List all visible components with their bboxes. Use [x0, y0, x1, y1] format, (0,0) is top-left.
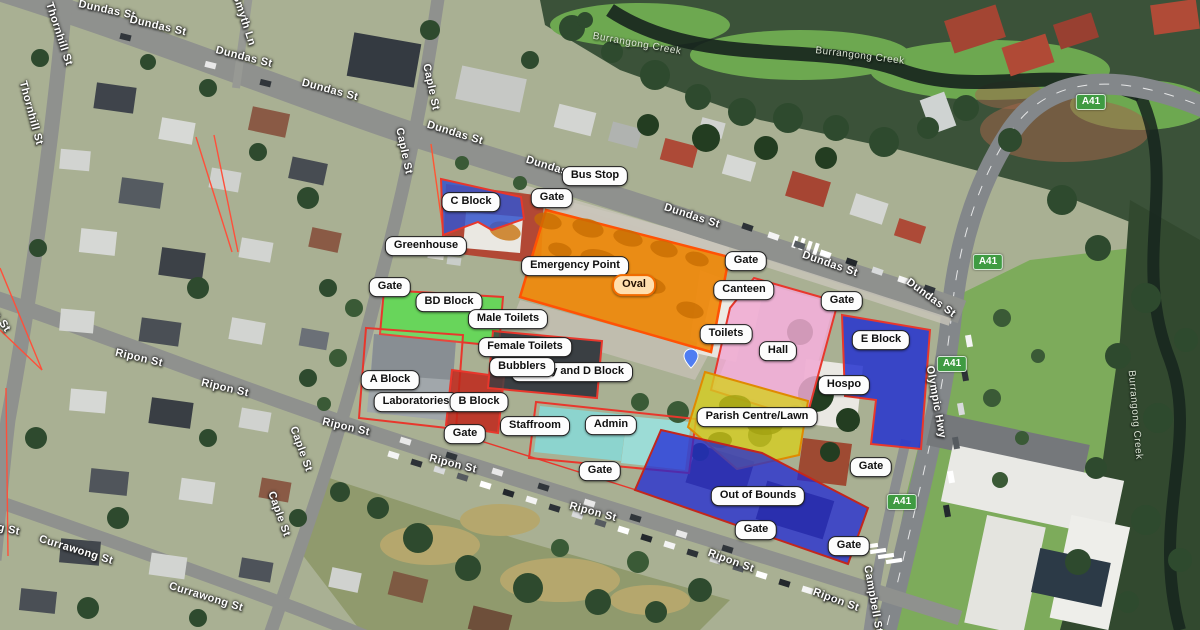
zone-label-laboratories: Laboratories	[374, 392, 459, 412]
gate-label-1: Gate	[531, 188, 573, 208]
zone-label-oval: Oval	[612, 274, 656, 296]
gate-label-4: Gate	[369, 277, 411, 297]
zone-label-bus-stop: Bus Stop	[562, 166, 628, 186]
zone-label-out-of-bounds: Out of Bounds	[711, 486, 805, 506]
gate-label-3: Gate	[821, 291, 863, 311]
zone-label-emergency-point: Emergency Point	[521, 256, 629, 276]
route-badge-a41-4: A41	[887, 494, 917, 510]
map-canvas[interactable]: Dundas St Dundas St Dundas St Dundas St …	[0, 0, 1200, 630]
zone-label-greenhouse: Greenhouse	[385, 236, 467, 256]
zone-label-male-toilets: Male Toilets	[468, 309, 548, 329]
gate-label-7: Gate	[850, 457, 892, 477]
zone-label-c-block: C Block	[442, 192, 501, 212]
gate-label-8: Gate	[735, 520, 777, 540]
route-badge-a41-2: A41	[973, 254, 1003, 270]
zone-label-admin: Admin	[585, 415, 637, 435]
zone-label-b-block: B Block	[450, 392, 509, 412]
route-badge-a41-1: A41	[1076, 94, 1106, 110]
zone-label-parish-centre: Parish Centre/Lawn	[697, 407, 818, 427]
zone-label-a-block: A Block	[361, 370, 420, 390]
zone-label-toilets: Toilets	[700, 324, 753, 344]
zone-label-staffroom: Staffroom	[500, 416, 570, 436]
gate-label-5: Gate	[444, 424, 486, 444]
gate-label-6: Gate	[579, 461, 621, 481]
gate-label-2: Gate	[725, 251, 767, 271]
route-badge-a41-3: A41	[937, 356, 967, 372]
satellite-base-art	[0, 0, 1200, 630]
zone-label-hall: Hall	[759, 341, 797, 361]
gate-label-9: Gate	[828, 536, 870, 556]
zone-label-female-toilets: Female Toilets	[478, 337, 572, 357]
zone-label-hospo: Hospo	[818, 375, 870, 395]
zone-label-bubblers: Bubblers	[489, 357, 555, 377]
zone-label-canteen: Canteen	[713, 280, 774, 300]
zone-label-e-block: E Block	[852, 330, 910, 350]
